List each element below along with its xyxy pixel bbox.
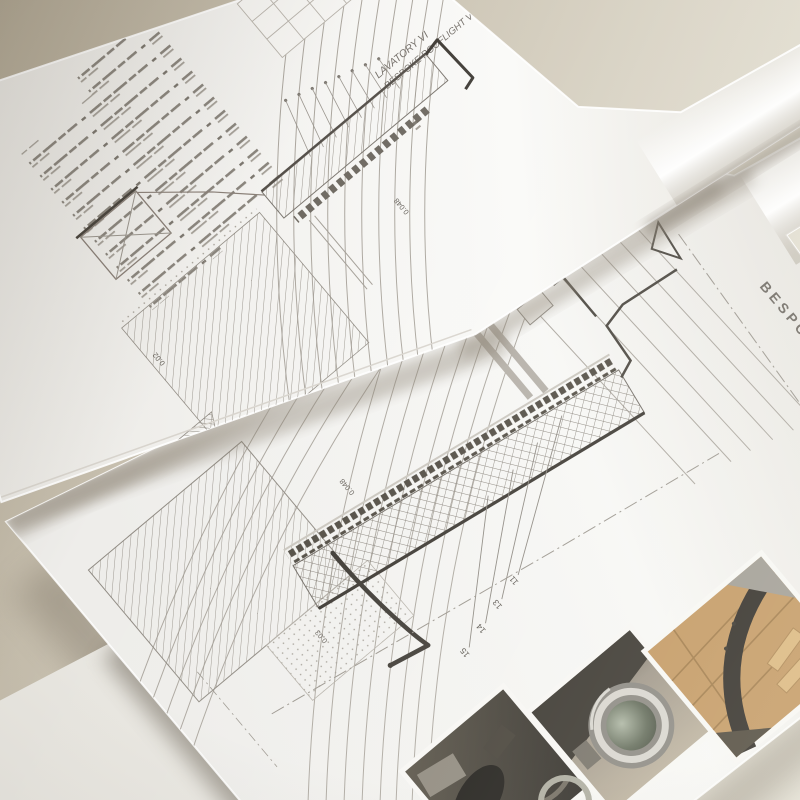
book-spread: 15 14 13 11 0.048 0.03 BESPOKE [0, 0, 800, 800]
spread-drawing: 15 14 13 11 0.048 0.03 BESPOKE [0, 0, 800, 800]
photo-of-open-portfolio: 15 14 13 11 0.048 0.03 BESPOKE [0, 0, 800, 800]
